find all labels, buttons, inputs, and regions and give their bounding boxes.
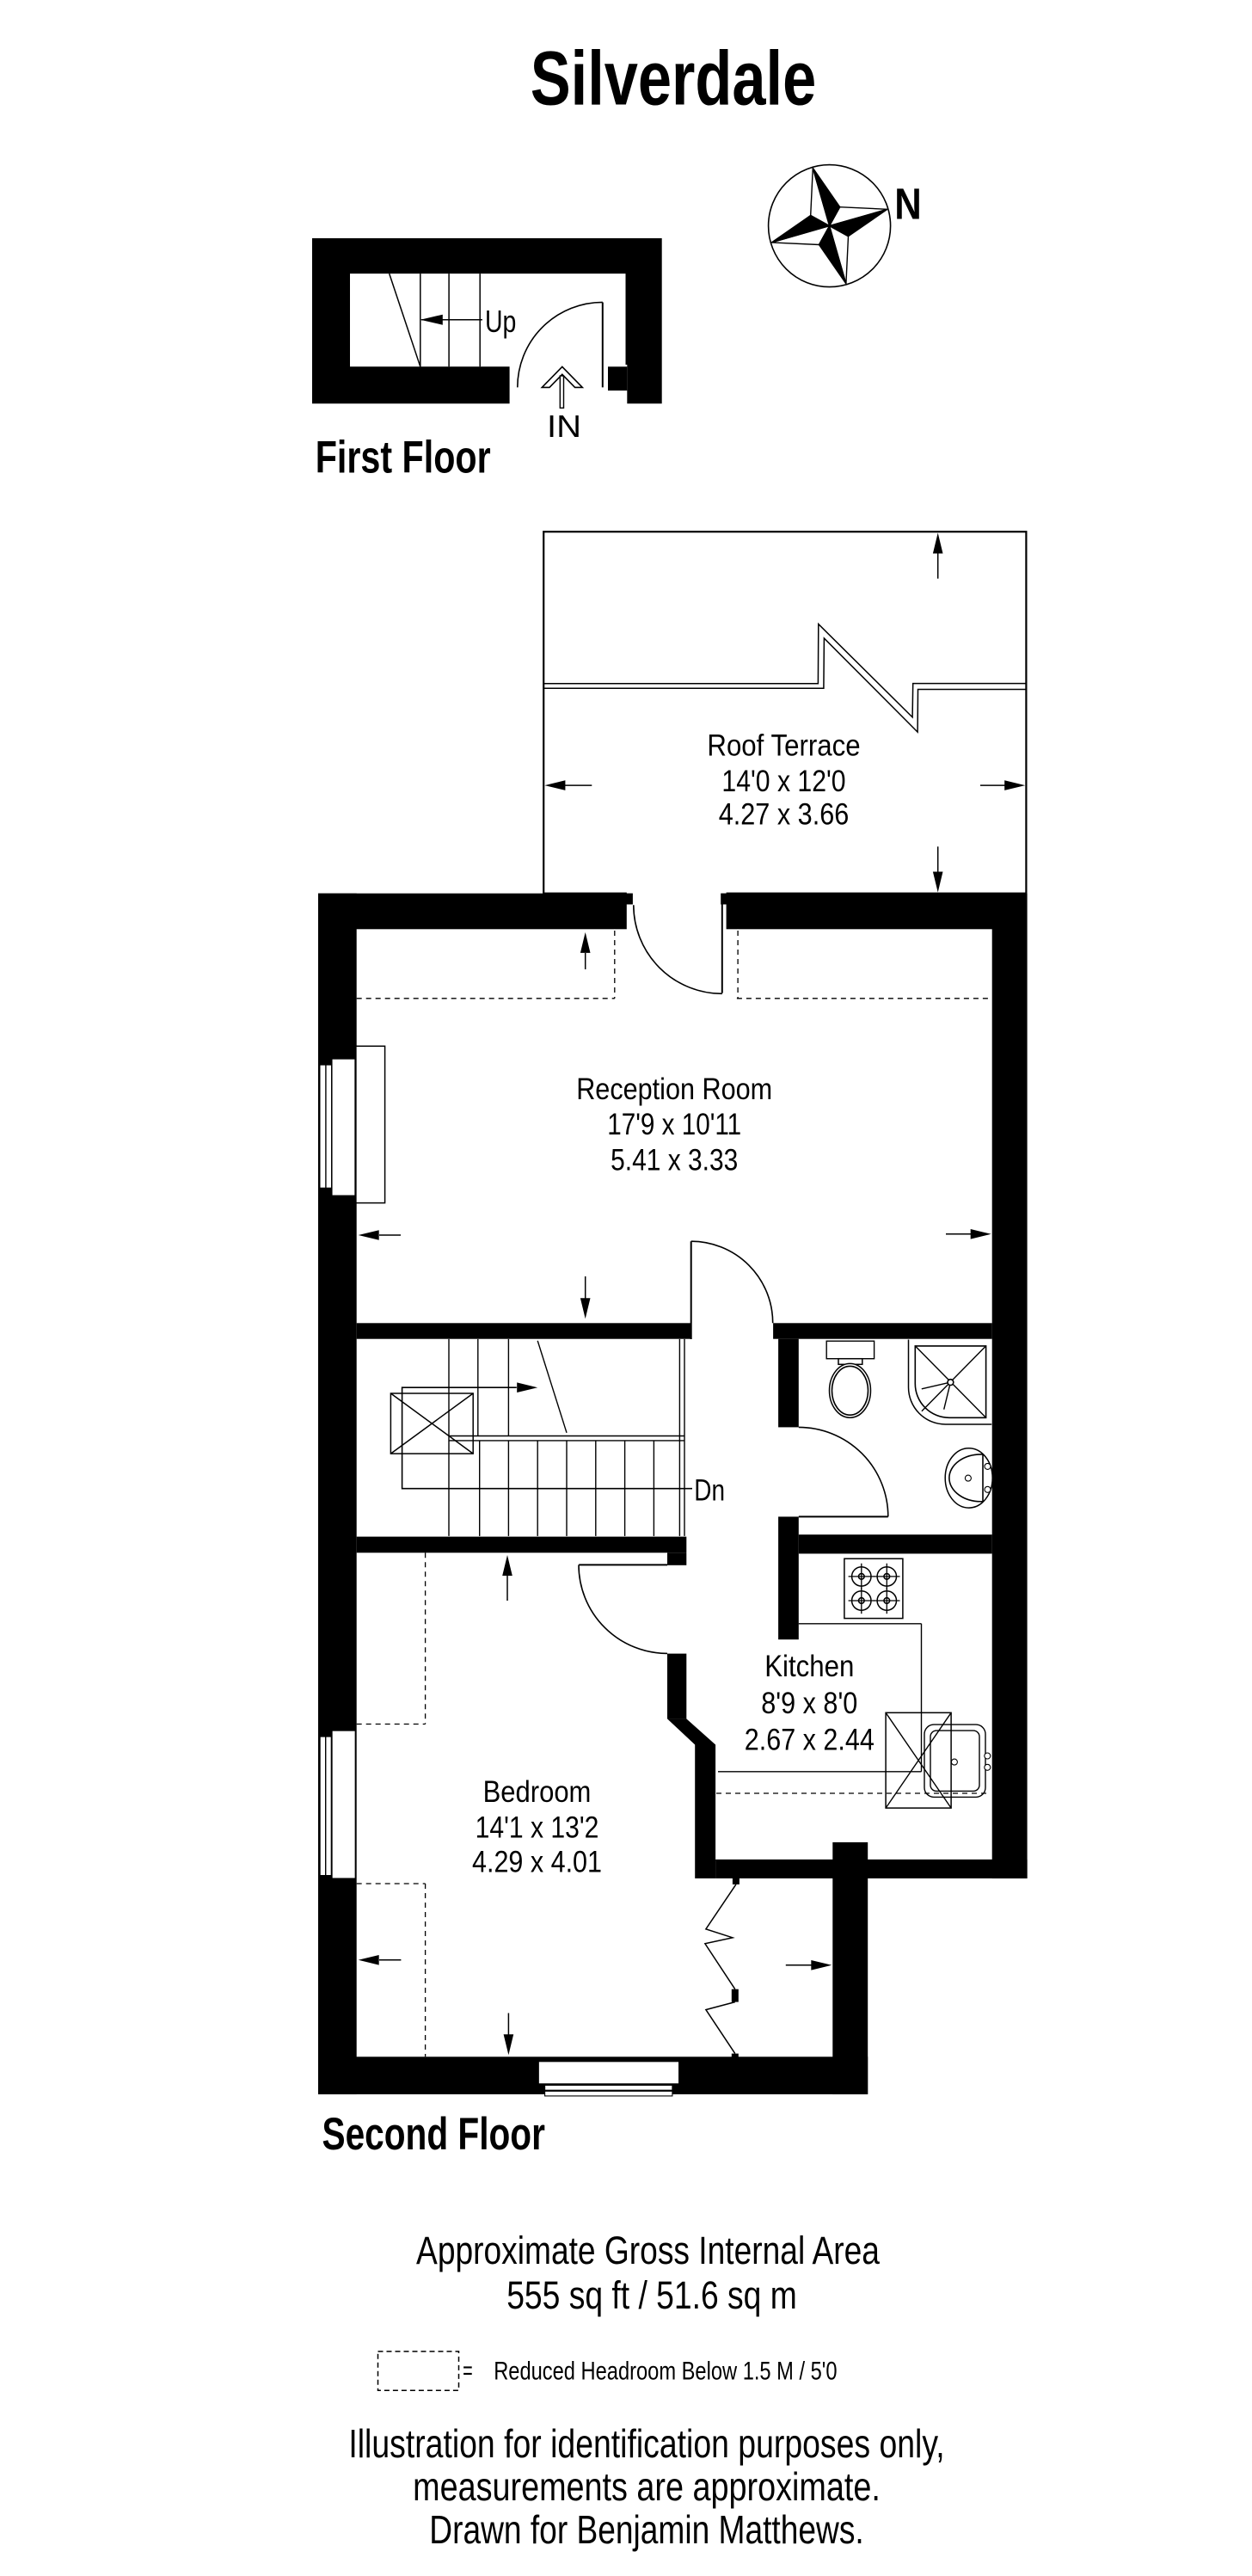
svg-text:4.27 x 3.66: 4.27 x 3.66	[719, 798, 850, 832]
svg-text:14'1 x 13'2: 14'1 x 13'2	[476, 1811, 599, 1845]
svg-text:5.41 x 3.33: 5.41 x 3.33	[611, 1143, 738, 1177]
svg-text:Illustration for identificatio: Illustration for identification purposes…	[348, 2421, 944, 2466]
svg-text:Silverdale: Silverdale	[531, 35, 817, 121]
svg-text:IN: IN	[547, 409, 581, 444]
svg-text:14'0 x 12'0: 14'0 x 12'0	[721, 765, 845, 798]
svg-text:Bedroom: Bedroom	[483, 1775, 592, 1809]
svg-text:Dn: Dn	[694, 1474, 725, 1508]
svg-text:8'9 x 8'0: 8'9 x 8'0	[761, 1687, 857, 1720]
svg-text:Up: Up	[485, 304, 516, 339]
svg-text:Reduced Headroom Below 1.5 M /: Reduced Headroom Below 1.5 M / 5'0	[494, 2357, 837, 2385]
svg-text:measurements are approximate.: measurements are approximate.	[413, 2464, 881, 2509]
svg-text:Reception Room: Reception Room	[576, 1073, 772, 1106]
svg-text:2.67 x 2.44: 2.67 x 2.44	[745, 1724, 875, 1757]
svg-text:Drawn for Benjamin Matthews.: Drawn for Benjamin Matthews.	[429, 2507, 863, 2552]
svg-text:Roof Terrace: Roof Terrace	[707, 729, 860, 763]
svg-text:N: N	[894, 179, 922, 228]
svg-text:17'9 x 10'11: 17'9 x 10'11	[607, 1108, 741, 1141]
svg-text:Second Floor: Second Floor	[322, 2109, 545, 2160]
svg-text:Approximate Gross Internal Are: Approximate Gross Internal Area	[416, 2229, 881, 2272]
svg-text:555 sq ft / 51.6 sq m: 555 sq ft / 51.6 sq m	[506, 2273, 797, 2317]
svg-text:=: =	[463, 2357, 473, 2385]
svg-text:Kitchen: Kitchen	[764, 1650, 854, 1683]
svg-text:4.29 x 4.01: 4.29 x 4.01	[472, 1846, 602, 1879]
svg-text:First Floor: First Floor	[316, 433, 491, 483]
